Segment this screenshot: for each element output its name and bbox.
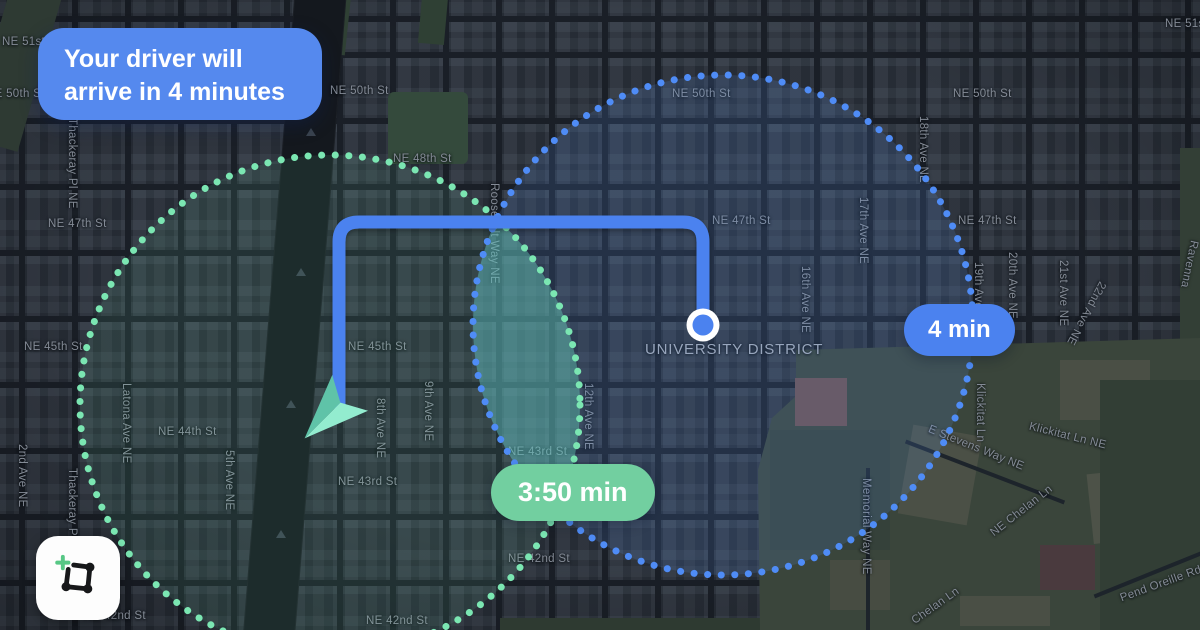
destination-pin[interactable] xyxy=(687,309,720,342)
plus-icon xyxy=(57,557,68,568)
blue-eta-badge: 4 min xyxy=(904,304,1015,356)
route-nodes-plus-icon xyxy=(52,552,104,604)
blue-eta-badge-label: 4 min xyxy=(928,316,991,344)
notification-line1: Your driver will xyxy=(64,43,322,76)
notification-line2: arrive in 4 minutes xyxy=(64,76,322,109)
driver-eta-notification: Your driver will arrive in 4 minutes xyxy=(38,28,322,120)
app-logo xyxy=(36,536,120,620)
location-dot-icon xyxy=(693,315,714,336)
green-eta-badge: 3:50 min xyxy=(491,464,655,521)
ride-map-screen: NE 51st StNE 50th StThackeray Pl NENE 47… xyxy=(0,0,1200,630)
green-eta-badge-label: 3:50 min xyxy=(518,477,628,508)
